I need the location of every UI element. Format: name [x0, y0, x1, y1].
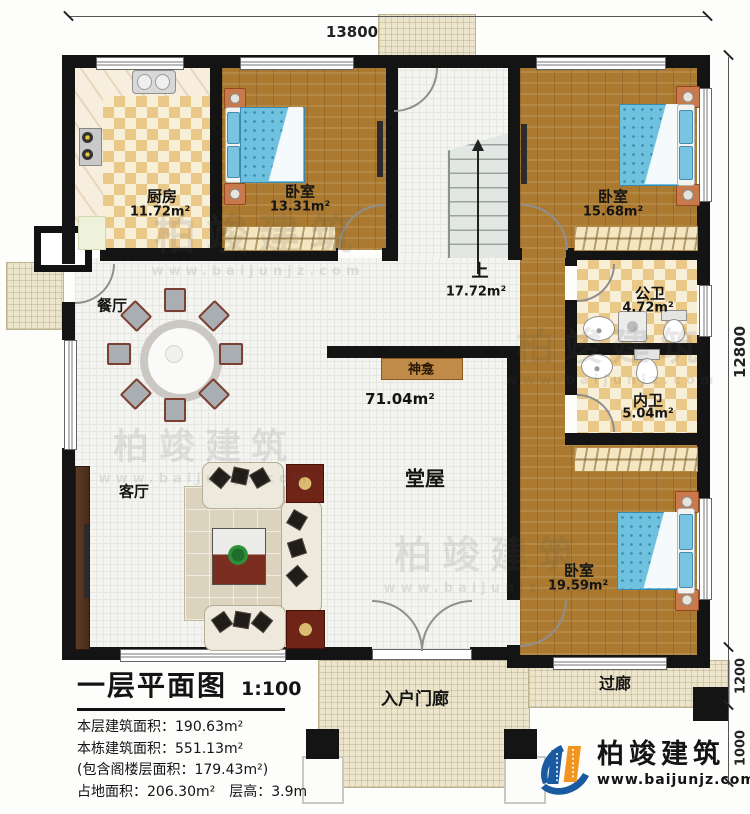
plan-title-row: 一层平面图1:100: [77, 664, 307, 704]
wall-front-right-stub: [470, 647, 507, 660]
dimension-passage-label: 1200: [734, 658, 749, 694]
dining-window: [64, 340, 77, 450]
bedroom1-nightstand-bottom: [224, 183, 246, 205]
dining-table-center: [165, 345, 183, 363]
company-logo-icon: [533, 738, 593, 800]
dimension-depth-label: 12800: [731, 326, 749, 378]
stair-up-label: 上: [472, 257, 489, 282]
wall-kitchen-bedroom1: [210, 55, 222, 248]
bedroom1-area: 13.31m²: [270, 200, 330, 215]
public-bath-sink: [583, 316, 615, 341]
wall-bath-west-mid: [565, 300, 577, 395]
bedroom3-bed-sheet: [617, 512, 677, 588]
wall-hall-corridor: [507, 346, 520, 600]
entry-porch-label: 入户门廊: [381, 685, 449, 710]
bedroom1-tv: [377, 121, 383, 177]
porch-column-left: [306, 729, 339, 759]
stove-burner-1: [82, 132, 93, 143]
passage-label: 过廊: [599, 670, 631, 694]
public-bath-toilet: [663, 319, 685, 343]
bedroom3-pillow-1: [679, 514, 693, 550]
kitchen-sink-bowl-left: [137, 74, 152, 90]
hall-area: 71.04m²: [365, 390, 435, 408]
wall-bedroom2-bottom-stub: [508, 248, 522, 260]
bedroom1-pillow-1: [227, 112, 240, 144]
bedroom2-wardrobe: [574, 226, 698, 251]
stove-burner-2: [82, 149, 93, 160]
kitchen-rug: [103, 96, 212, 248]
sofa-bottom-pillow-2: [233, 611, 252, 630]
wall-right-1: [697, 55, 710, 88]
info-line-floor-area: 本层建筑面积：190.63m²: [77, 717, 307, 739]
wall-shrine: [327, 346, 520, 358]
dining-label: 餐厅: [97, 295, 127, 316]
bedroom1-label: 卧室: [285, 181, 315, 202]
side-table-bottom: [286, 610, 325, 649]
hall-label: 堂屋: [405, 463, 445, 492]
company-logo: 柏竣建筑 www.baijunjz.com: [533, 738, 750, 800]
dimension-line-top: [68, 16, 708, 17]
wall-left-mid: [62, 302, 75, 340]
bedroom3-label: 卧室: [564, 560, 594, 581]
wall-kitchen-bottom: [100, 248, 222, 261]
kitchen-sink-bowl-right: [155, 74, 170, 90]
wall-bath-bottom: [565, 433, 710, 445]
plan-scale: 1:100: [241, 678, 301, 700]
coffee-table-plant: [228, 545, 248, 565]
dining-chair-e: [219, 343, 243, 365]
bedroom2-nightstand-bottom: [676, 184, 700, 206]
bedroom1-bed-sheet: [240, 107, 303, 181]
bedroom3-wardrobe: [574, 447, 698, 472]
wall-right-2: [697, 200, 710, 285]
kitchen-fridge: [78, 216, 106, 250]
bedroom2-window: [536, 57, 666, 70]
company-name: 柏竣建筑: [597, 738, 750, 772]
company-text: 柏竣建筑 www.baijunjz.com: [597, 738, 750, 788]
corridor-floor: [520, 260, 565, 450]
passage-column: [693, 687, 728, 721]
inner-bath-sink: [581, 354, 613, 379]
dining-chair-n: [164, 288, 186, 312]
wall-left-lower: [62, 448, 75, 660]
bedroom1-wardrobe: [224, 226, 336, 251]
bedroom1-window: [240, 57, 354, 70]
company-website: www.baijunjz.com: [597, 772, 750, 788]
wall-front-left-stub: [332, 647, 372, 660]
inner-bath-toilet: [636, 358, 658, 384]
kitchen-area: 11.72m²: [130, 205, 190, 220]
wall-stairhall-bedroom2: [508, 55, 520, 248]
side-table-top: [286, 464, 324, 503]
dining-chair-w: [107, 343, 131, 365]
bedroom3-pillow-2: [679, 552, 693, 588]
bedroom3-area: 19.59m²: [548, 579, 608, 594]
public-bath-window: [699, 285, 712, 337]
bedroom2-label: 卧室: [598, 186, 628, 207]
wall-left-upper: [62, 55, 75, 264]
bedroom3-window: [553, 657, 667, 670]
bedroom1-nightstand-top: [224, 88, 246, 109]
sofa-top-pillow-2: [231, 467, 250, 486]
bedroom2-tv: [521, 124, 527, 184]
stair-area: 17.72m²: [446, 285, 506, 300]
stair-arrow-head: [472, 139, 484, 151]
plan-title: 一层平面图: [77, 664, 227, 704]
bedroom2-area: 15.68m²: [583, 205, 643, 220]
bedroom1-pillow-2: [227, 146, 240, 178]
bedroom2-pillow-1: [679, 110, 693, 144]
dimension-line-right: [728, 57, 729, 785]
wall-hall-corridor-stub: [507, 645, 520, 668]
stair-arrow-line: [477, 150, 479, 274]
public-bath-area: 4.72m²: [622, 301, 673, 316]
bedroom2-bed-sheet: [619, 104, 678, 184]
public-bath-shower: [618, 311, 647, 342]
entry-porch-floor: [318, 660, 530, 788]
wall-bath-west-top: [565, 258, 577, 266]
title-underline: [77, 708, 285, 711]
kitchen-window: [96, 57, 184, 70]
bedroom3-side-window: [699, 498, 712, 600]
dining-chair-s: [164, 398, 186, 422]
inner-bath-area: 5.04m²: [622, 407, 673, 422]
dimension-width-label: 13800: [326, 23, 378, 41]
wall-bedroom1-bottom-stub: [382, 248, 398, 261]
info-line-building-area: 本栋建筑面积：551.13m²: [77, 739, 307, 761]
shrine-label: 神龛: [408, 359, 434, 378]
porch-step-left: [302, 756, 344, 804]
info-line-attic-area: (包含阁楼层面积：179.43m²): [77, 760, 307, 782]
floor-plan-page: { "dimensions": { "width_total": "13800"…: [0, 0, 750, 814]
bedroom2-pillow-2: [679, 146, 693, 180]
living-tv: [84, 524, 89, 598]
kitchen-label: 厨房: [147, 186, 177, 207]
living-label: 客厅: [119, 481, 149, 502]
info-line-footprint-height: 占地面积：206.30m² 层高：3.9m: [77, 782, 307, 804]
wall-right-3: [697, 335, 710, 498]
side-terrace: [6, 262, 64, 330]
bedroom2-side-window: [699, 88, 712, 202]
title-block: 一层平面图1:100 本层建筑面积：190.63m² 本栋建筑面积：551.13…: [77, 664, 307, 803]
